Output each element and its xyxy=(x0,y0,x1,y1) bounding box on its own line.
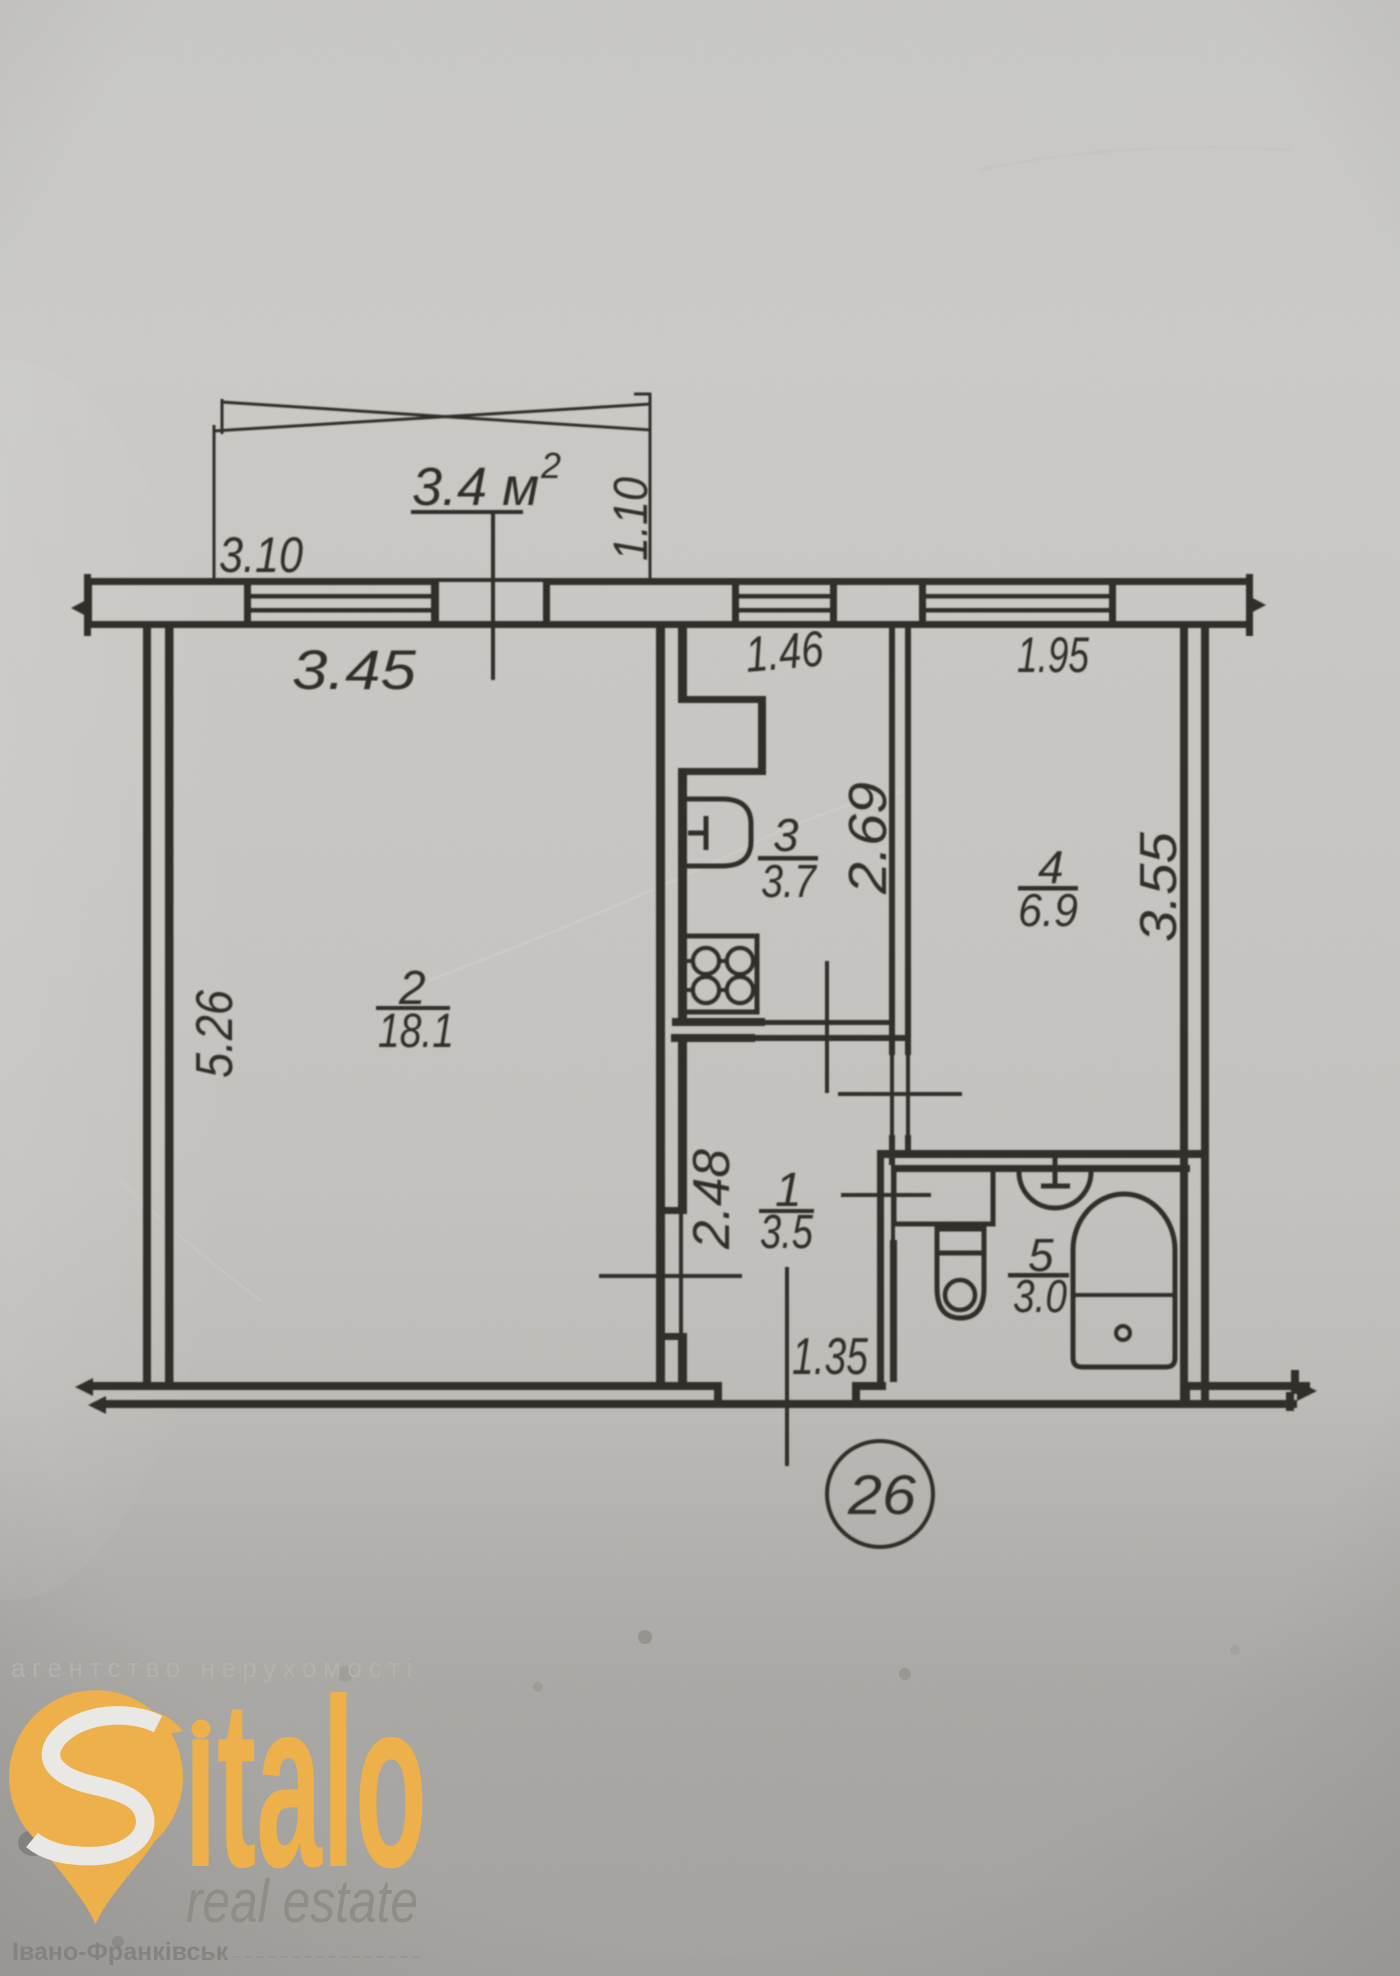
svg-text:3.45: 3.45 xyxy=(292,638,417,701)
svg-text:3.4 м: 3.4 м xyxy=(412,457,539,517)
svg-text:18.1: 18.1 xyxy=(378,1005,454,1058)
svg-text:1.35: 1.35 xyxy=(792,1328,869,1386)
svg-text:3.55: 3.55 xyxy=(1130,831,1188,942)
svg-text:3: 3 xyxy=(773,809,799,861)
svg-text:26: 26 xyxy=(847,1463,917,1526)
svg-text:2: 2 xyxy=(540,445,561,486)
svg-text:2.69: 2.69 xyxy=(838,782,898,895)
svg-text:3.0: 3.0 xyxy=(1013,1270,1067,1322)
svg-text:6.9: 6.9 xyxy=(1018,884,1078,936)
svg-text:2.48: 2.48 xyxy=(683,1149,741,1250)
svg-text:real estate: real estate xyxy=(186,1868,418,1935)
svg-text:3.10: 3.10 xyxy=(219,527,303,583)
svg-text:3.7: 3.7 xyxy=(761,855,817,907)
svg-text:1.95: 1.95 xyxy=(1017,627,1089,683)
svg-text:Івано-Франківськ: Івано-Франківськ xyxy=(12,1938,229,1966)
svg-text:1.46: 1.46 xyxy=(743,620,826,683)
svg-text:5.26: 5.26 xyxy=(186,990,244,1078)
svg-text:3.5: 3.5 xyxy=(760,1206,813,1259)
svg-text:1.10: 1.10 xyxy=(605,477,658,561)
